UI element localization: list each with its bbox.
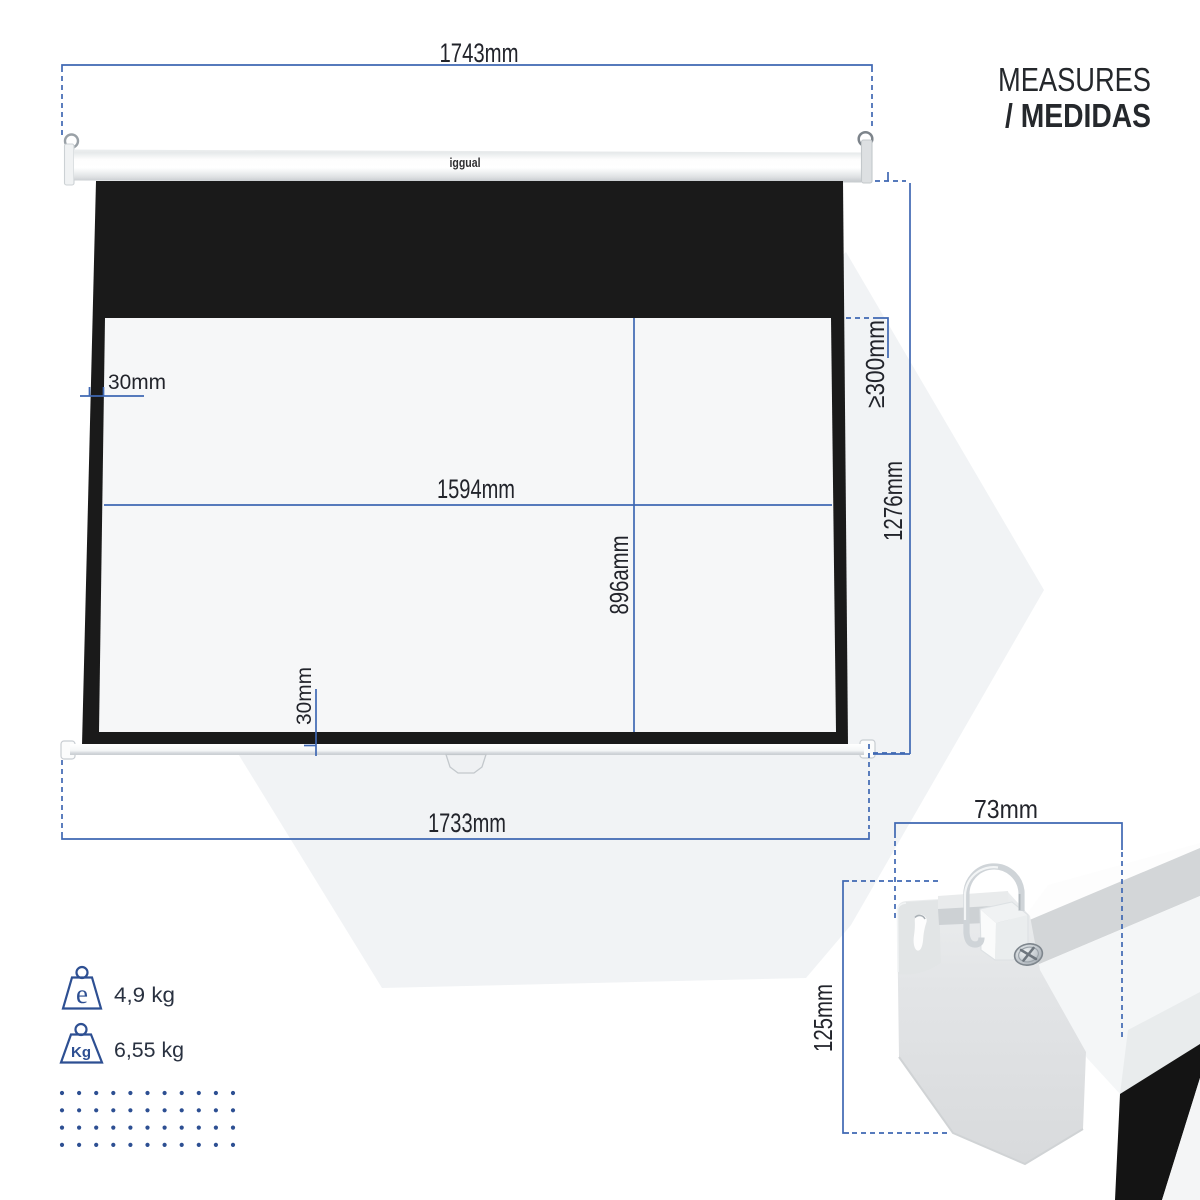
svg-text:30mm: 30mm [108,371,166,394]
svg-text:6,55 kg: 6,55 kg [114,1039,184,1062]
svg-text:MEASURES: MEASURES [998,61,1151,98]
svg-text:1733mm: 1733mm [428,808,506,838]
svg-text:1594mm: 1594mm [437,474,515,504]
svg-text:73mm: 73mm [974,794,1038,824]
svg-text:4,9 kg: 4,9 kg [114,984,175,1007]
svg-text:1276mm: 1276mm [878,461,908,541]
svg-text:1743mm: 1743mm [440,38,519,68]
svg-text:e: e [76,979,88,1009]
svg-text:896amm: 896amm [604,536,634,615]
svg-text:/ MEDIDAS: / MEDIDAS [1005,97,1151,134]
svg-text:Kg: Kg [71,1044,91,1061]
svg-text:125mm: 125mm [808,984,838,1052]
svg-text:iggual: iggual [450,156,481,170]
svg-text:≥300mm: ≥300mm [860,320,890,408]
svg-text:30mm: 30mm [293,667,316,725]
